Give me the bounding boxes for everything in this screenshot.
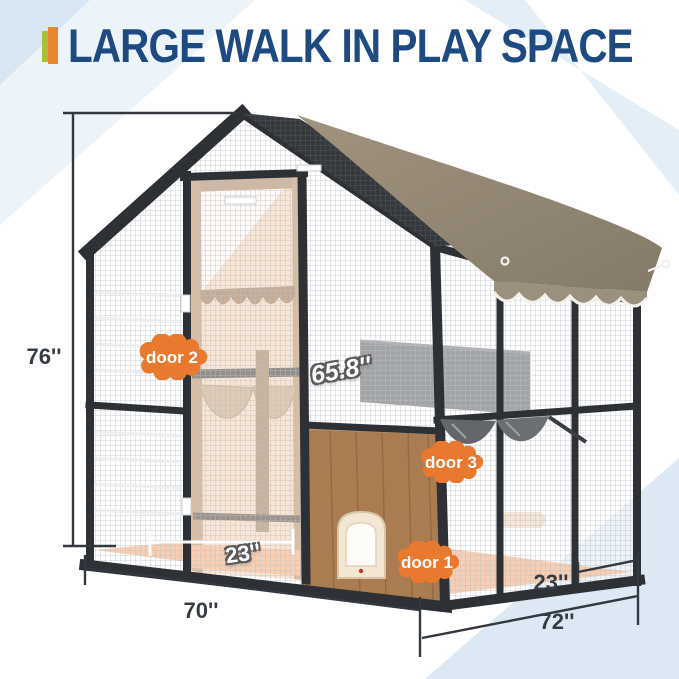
door-top-rail: [184, 173, 304, 177]
cat-flap: [338, 512, 385, 578]
door-badge-label: door 1: [401, 553, 453, 573]
dimension-label-depth-section: 23'': [534, 570, 569, 596]
dimension-label-depth: 72'': [540, 609, 575, 635]
dimension-label-door-width: 23'': [224, 539, 262, 570]
door-badge-1: door 1: [393, 541, 461, 583]
door-badge-label: door 3: [425, 453, 477, 473]
door-latch: [225, 197, 256, 204]
dimension-label-front-width: 70'': [184, 598, 219, 624]
product-dimension-diagram: LARGE WALK IN PLAY SPACE 76'' 70'' 72'' …: [0, 0, 679, 679]
door-badge-2: door 2: [135, 334, 209, 380]
door-hinge-low: [182, 498, 191, 515]
accent-bar-orange: [48, 27, 58, 64]
flap-lock-dot: [359, 569, 363, 573]
page-title: LARGE WALK IN PLAY SPACE: [68, 22, 633, 69]
dimension-label-height: 76'': [27, 344, 62, 370]
door-badge-label: door 2: [146, 348, 198, 368]
door-hinge-mid: [181, 295, 190, 312]
door-post-right: [302, 172, 306, 580]
door-hinge-top: [297, 165, 321, 171]
door-badge-3: door 3: [417, 441, 485, 483]
enclosure-illustration: [0, 0, 679, 679]
